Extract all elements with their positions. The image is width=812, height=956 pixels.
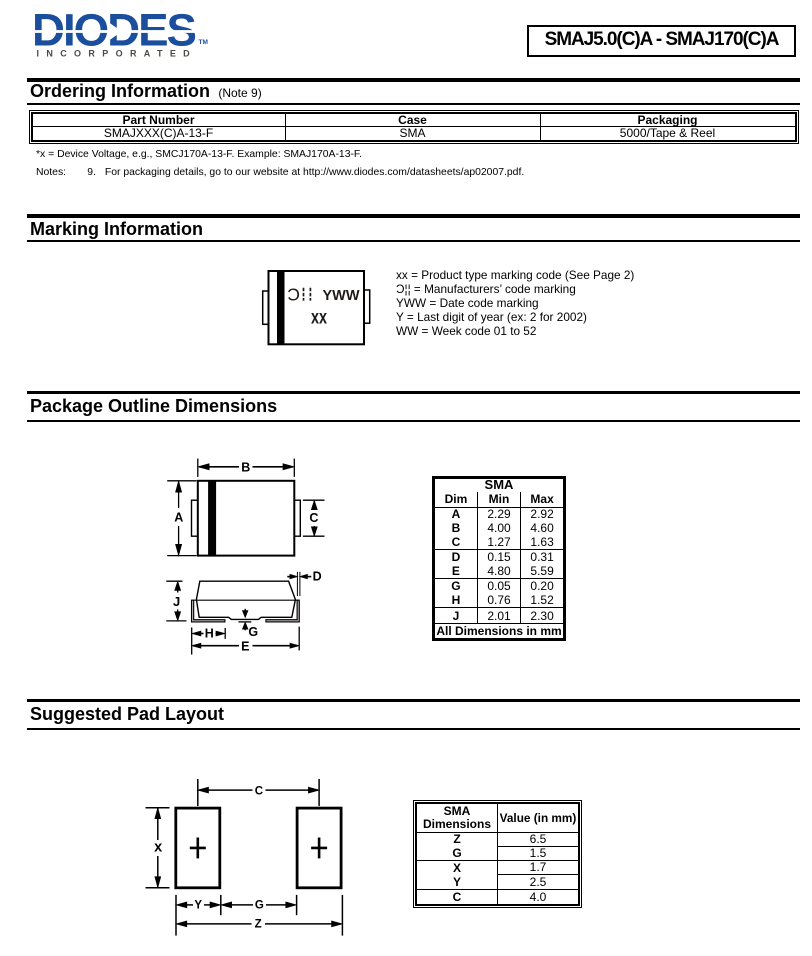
svg-text:D: D <box>313 569 322 583</box>
svg-text:Ɔ: Ɔ <box>287 284 300 304</box>
svg-text:C: C <box>255 785 263 797</box>
svg-text:H: H <box>205 626 214 640</box>
svg-text:Y: Y <box>194 900 202 912</box>
svg-text:C: C <box>309 511 318 525</box>
svg-text:E: E <box>241 639 249 653</box>
svg-text:YWW: YWW <box>323 287 361 304</box>
svg-text:xx: xx <box>311 307 327 328</box>
svg-text:Z: Z <box>255 919 262 931</box>
svg-text:B: B <box>241 461 250 475</box>
svg-text:G: G <box>255 900 264 912</box>
svg-text:x: x <box>154 840 162 856</box>
svg-text:J: J <box>173 594 180 609</box>
svg-text:A: A <box>174 511 183 525</box>
svg-text:TM: TM <box>199 39 208 46</box>
svg-text:G: G <box>248 625 258 639</box>
svg-text:INCORPORATED: INCORPORATED <box>37 48 198 58</box>
